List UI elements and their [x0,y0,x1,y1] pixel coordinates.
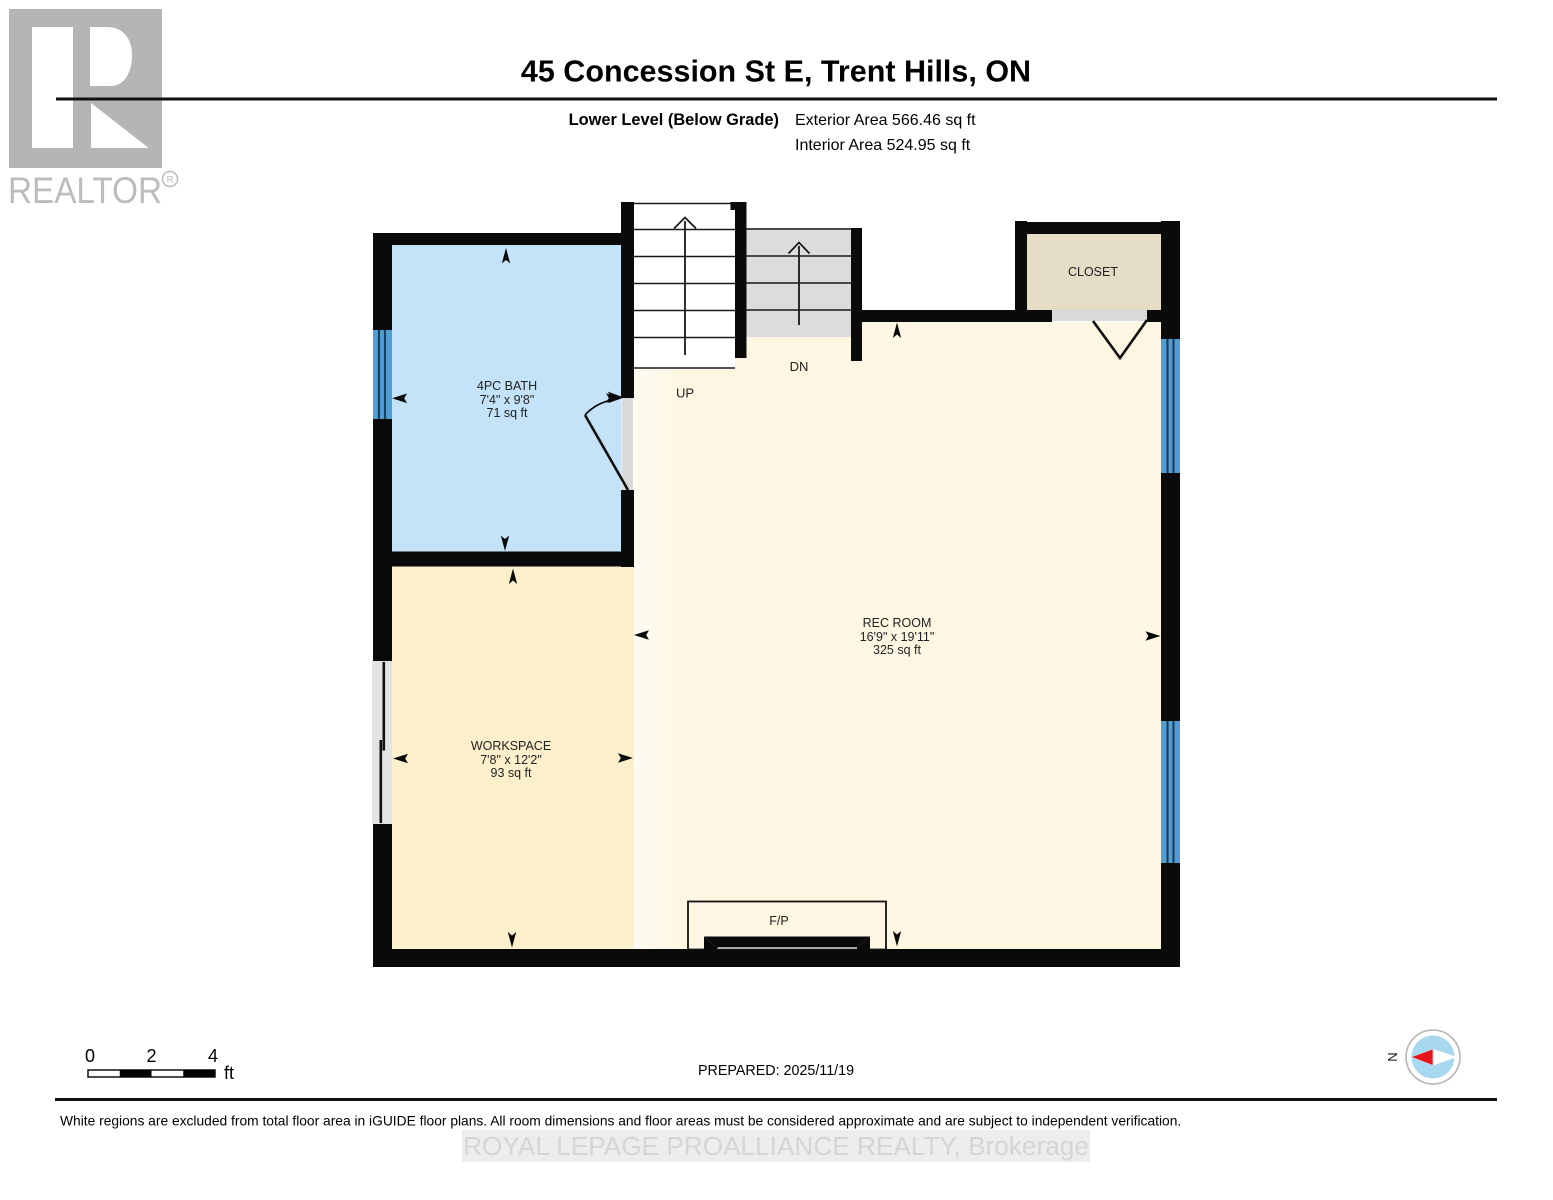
svg-text:4: 4 [208,1046,218,1066]
svg-text:REALTOR: REALTOR [8,170,162,211]
svg-text:93 sq ft: 93 sq ft [491,766,533,780]
svg-text:R: R [167,175,174,186]
svg-text:DN: DN [790,359,809,374]
svg-text:ft: ft [224,1063,234,1083]
svg-text:CLOSET: CLOSET [1068,265,1118,279]
svg-text:325 sq ft: 325 sq ft [873,643,921,657]
svg-text:UP: UP [676,386,694,401]
svg-text:White regions are excluded fro: White regions are excluded from total fl… [60,1114,1181,1129]
svg-text:2: 2 [146,1046,156,1066]
svg-text:ROYAL LEPAGE PROALLIANCE REALT: ROYAL LEPAGE PROALLIANCE REALTY, Brokera… [463,1131,1089,1161]
svg-text:0: 0 [85,1046,95,1066]
svg-text:7'4" x 9'8": 7'4" x 9'8" [480,393,535,407]
svg-text:F/P: F/P [769,914,788,928]
svg-text:N: N [1385,1052,1400,1061]
svg-text:PREPARED: 2025/11/19: PREPARED: 2025/11/19 [698,1063,854,1079]
svg-text:WORKSPACE: WORKSPACE [471,739,551,753]
svg-text:Lower Level (Below Grade): Lower Level (Below Grade) [569,111,779,129]
svg-text:16'9" x 19'11": 16'9" x 19'11" [860,630,935,644]
svg-text:Exterior Area 566.46 sq ft: Exterior Area 566.46 sq ft [795,112,976,129]
svg-text:71 sq ft: 71 sq ft [487,406,529,420]
svg-text:45 Concession St E, Trent Hill: 45 Concession St E, Trent Hills, ON [521,55,1031,89]
svg-text:7'8" x 12'2": 7'8" x 12'2" [480,753,542,767]
svg-text:Interior Area 524.95 sq ft: Interior Area 524.95 sq ft [795,137,971,154]
svg-text:4PC BATH: 4PC BATH [477,379,537,393]
svg-text:REC ROOM: REC ROOM [863,616,932,630]
